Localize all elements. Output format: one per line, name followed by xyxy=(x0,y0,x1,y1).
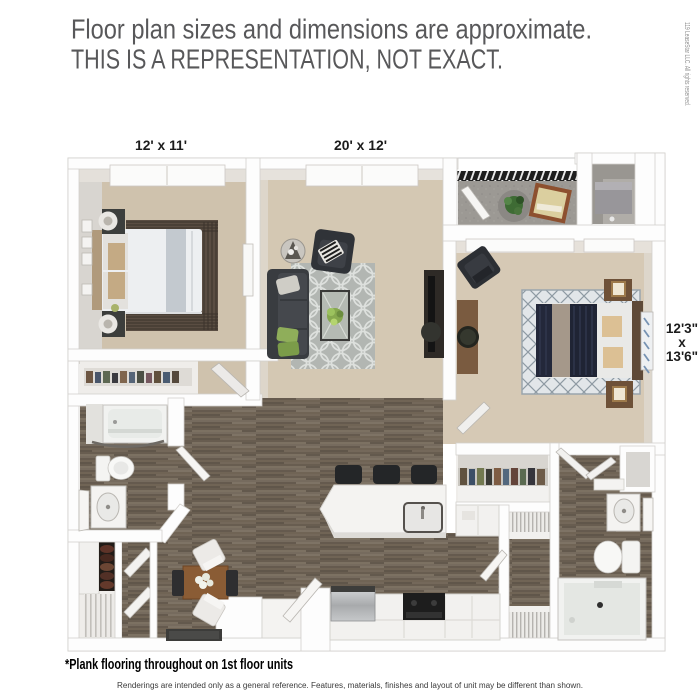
svg-text:x: x xyxy=(678,335,686,350)
svg-text:12'3": 12'3" xyxy=(666,321,698,336)
svg-text:*Plank flooring throughout on: *Plank flooring throughout on 1st floor … xyxy=(65,657,293,673)
svg-text:12' x 11': 12' x 11' xyxy=(135,137,187,153)
svg-text:Floor plan sizes and dimension: Floor plan sizes and dimensions are appr… xyxy=(71,14,592,45)
svg-text:Renderings are intended only a: Renderings are intended only as a genera… xyxy=(117,681,583,690)
svg-text:THIS IS A REPRESENTATION, NOT: THIS IS A REPRESENTATION, NOT EXACT. xyxy=(71,44,503,75)
svg-text:13'6": 13'6" xyxy=(666,349,698,364)
svg-text:119 LeaseStar LLC. All rights: 119 LeaseStar LLC. All rights reserved. xyxy=(683,22,692,106)
svg-text:20' x 12': 20' x 12' xyxy=(334,137,387,153)
